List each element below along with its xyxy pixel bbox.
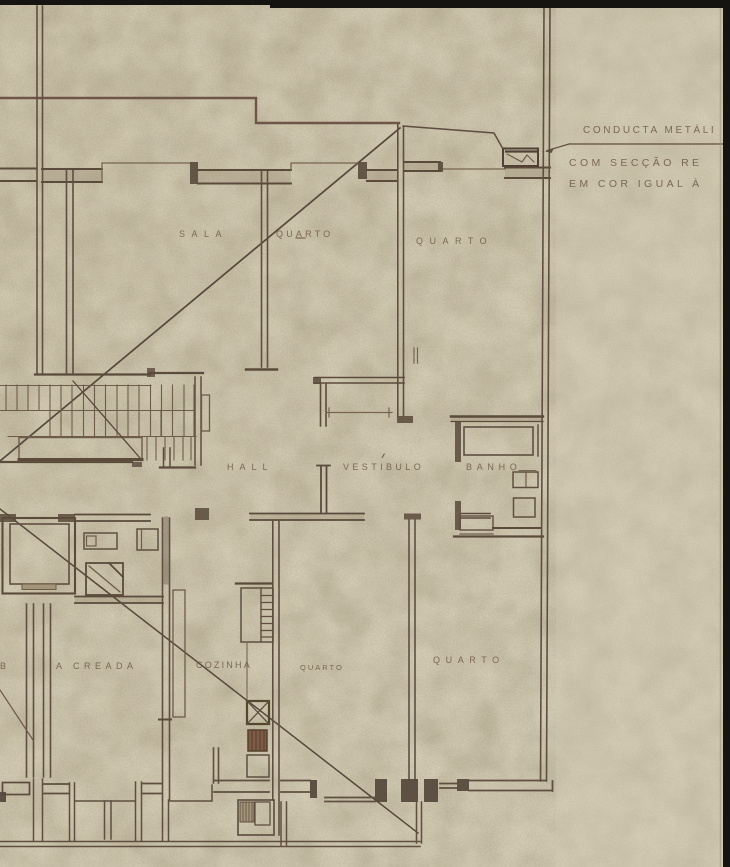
svg-text:A CREADA: A CREADA bbox=[56, 661, 138, 671]
svg-text:EM COR IGUAL À: EM COR IGUAL À bbox=[569, 177, 703, 190]
svg-text:CONDUCTA METÁLI: CONDUCTA METÁLI bbox=[583, 123, 716, 136]
svg-text:VESTIBULO: VESTIBULO bbox=[343, 462, 424, 472]
svg-text:COZINHA: COZINHA bbox=[196, 660, 252, 670]
svg-text:SALA: SALA bbox=[179, 229, 228, 239]
svg-text:HALL: HALL bbox=[227, 462, 274, 472]
svg-text:COM SECÇÃO RE: COM SECÇÃO RE bbox=[569, 156, 702, 169]
svg-text:QUARTO: QUARTO bbox=[300, 663, 344, 672]
svg-text:QUARTO: QUARTO bbox=[276, 229, 333, 239]
svg-text:B: B bbox=[0, 661, 6, 671]
svg-text:BANHO: BANHO bbox=[466, 462, 522, 472]
svg-text:QUARTO: QUARTO bbox=[416, 236, 493, 246]
svg-text:QUARTO: QUARTO bbox=[433, 655, 505, 665]
